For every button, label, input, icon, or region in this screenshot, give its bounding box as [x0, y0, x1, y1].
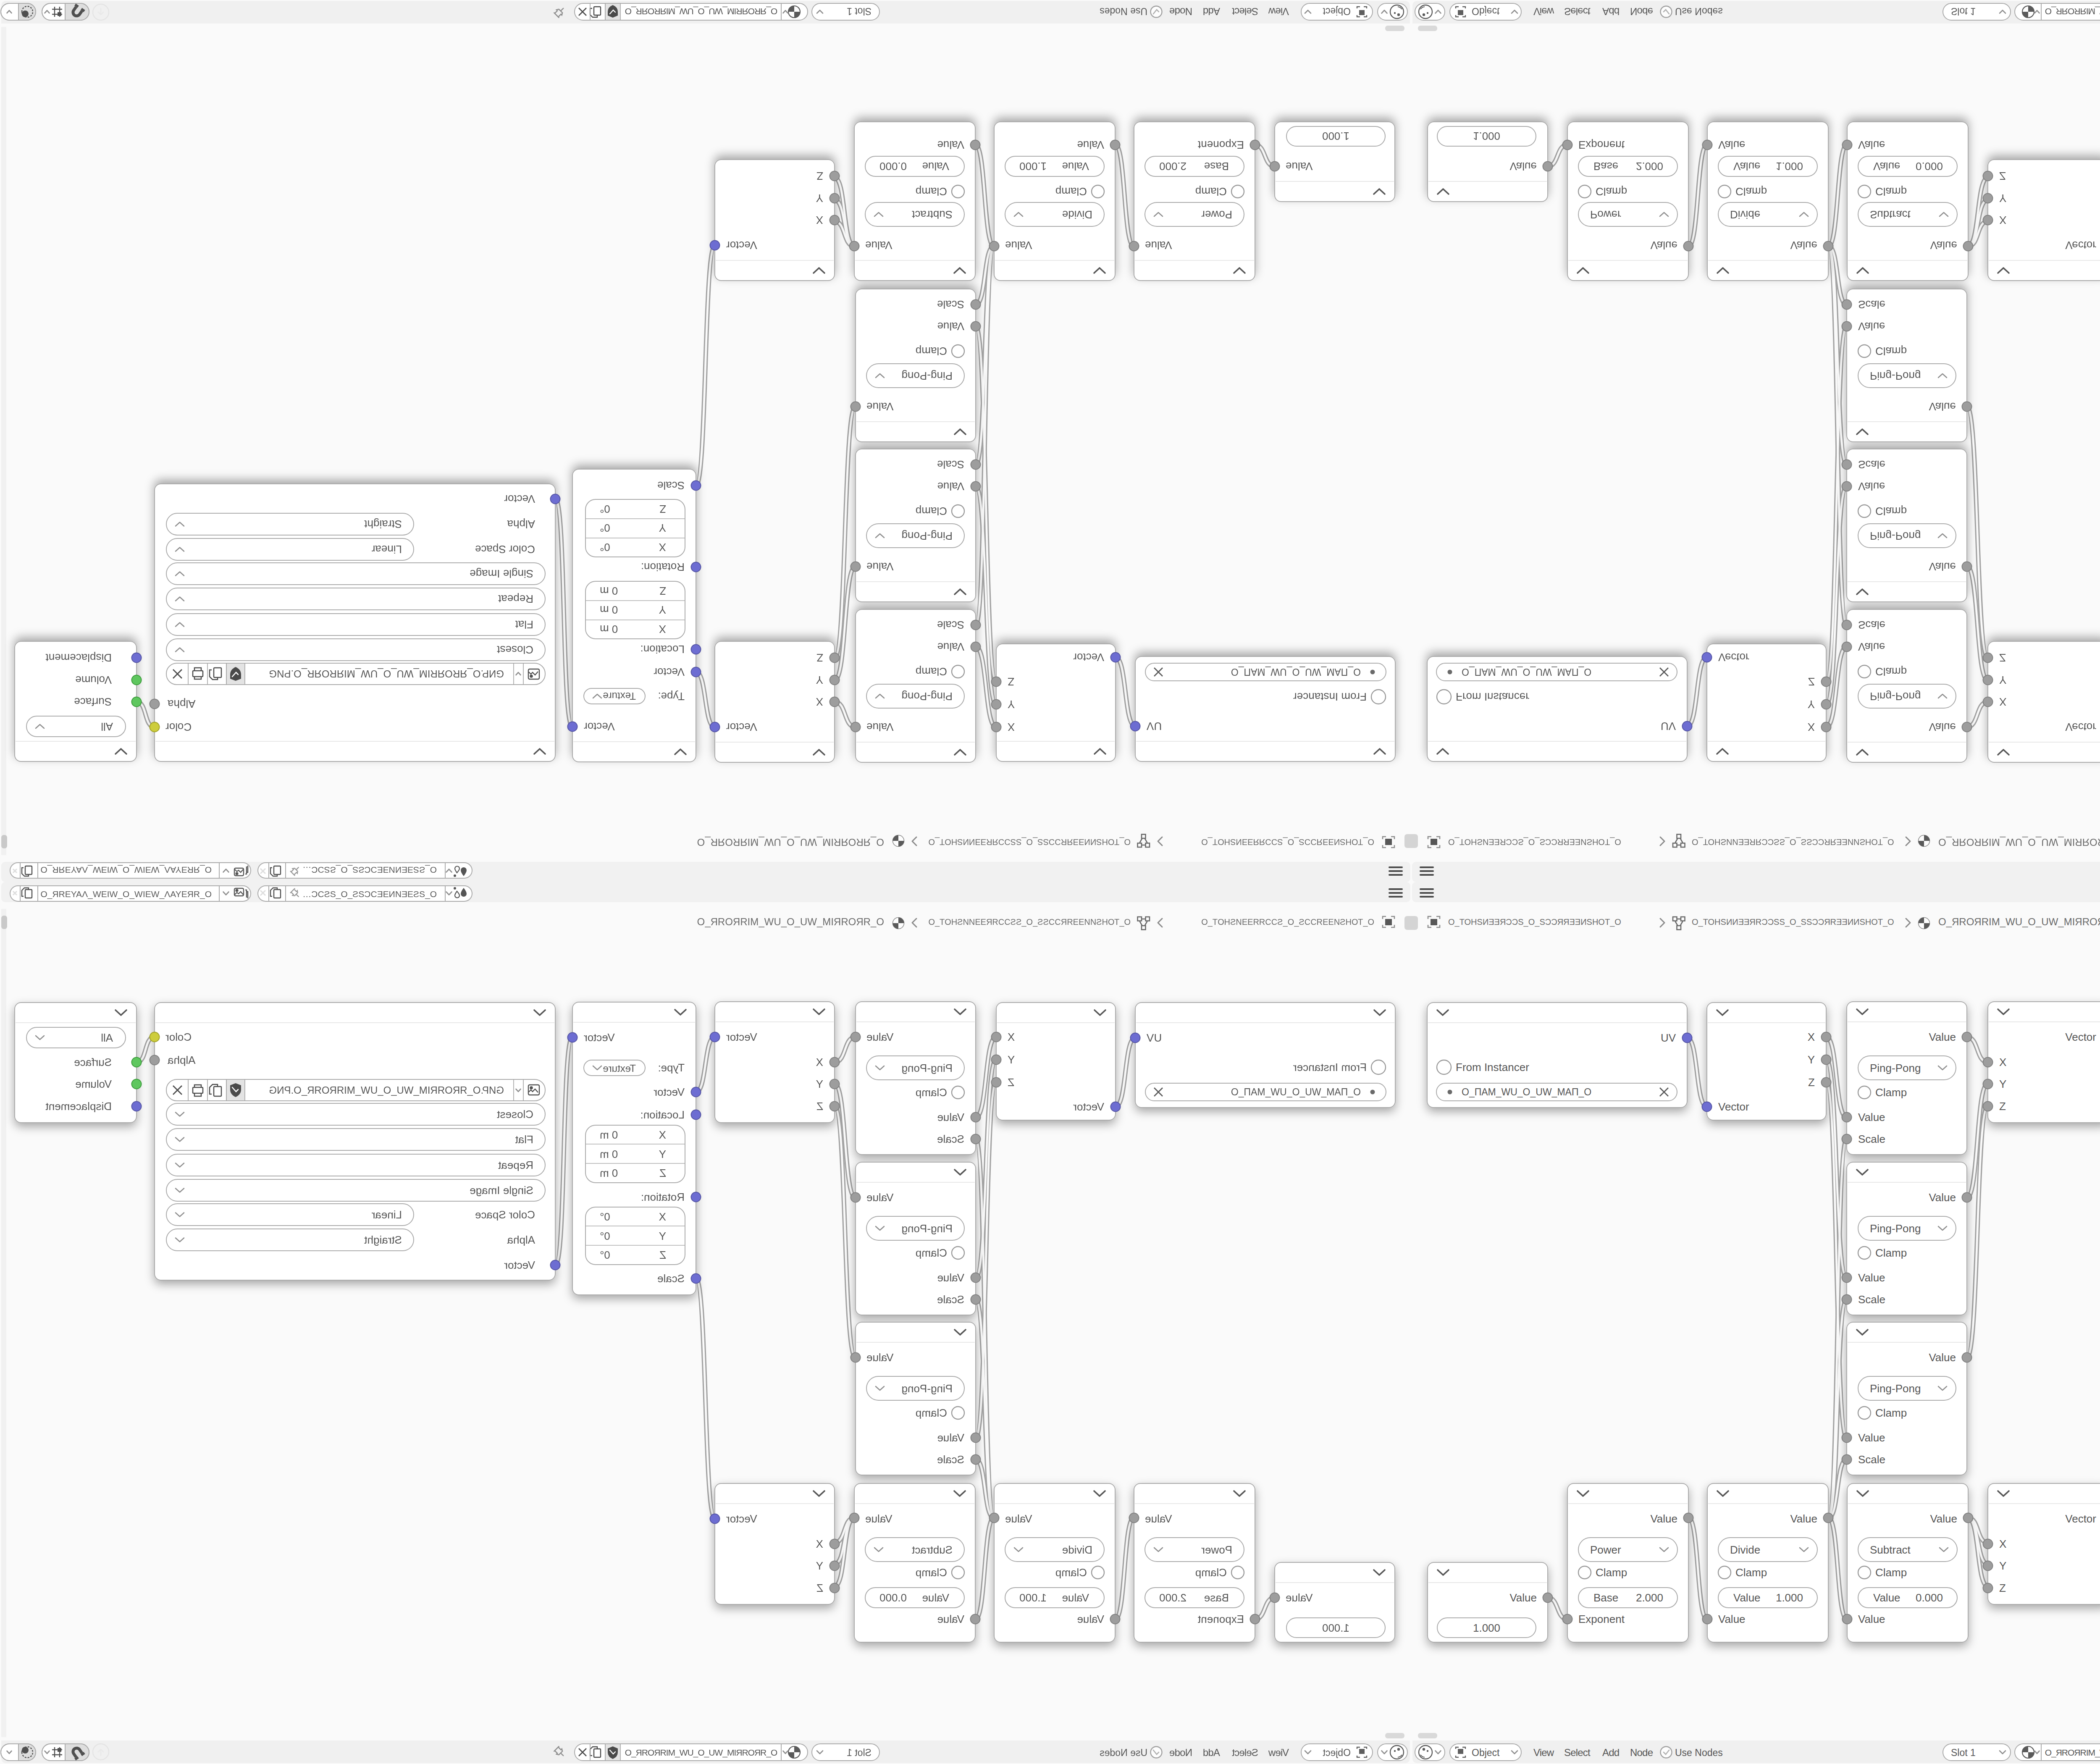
svg-text:Z: Z	[1808, 1076, 1815, 1089]
svg-text:Clamp: Clamp	[1735, 1566, 1767, 1579]
svg-text:Base: Base	[1204, 160, 1229, 173]
svg-text:Z: Z	[1999, 1100, 2006, 1113]
svg-text:Add: Add	[1602, 6, 1619, 17]
svg-text:Clamp: Clamp	[1875, 185, 1907, 198]
svg-text:Z: Z	[659, 1249, 666, 1261]
svg-text:Clamp: Clamp	[1596, 185, 1627, 198]
svg-text:Value: Value	[1077, 139, 1104, 151]
svg-text:1.000: 1.000	[1019, 160, 1047, 173]
svg-text:Power: Power	[1201, 208, 1232, 221]
svg-text:Y: Y	[1999, 192, 2006, 205]
svg-text:Clamp: Clamp	[1875, 345, 1907, 357]
svg-text:From Instancer: From Instancer	[1293, 690, 1367, 703]
svg-text:Subtract: Subtract	[1870, 208, 1911, 221]
svg-text:O_TOHSИИƎƎЯRƆƆSS_O_SSƆƆЯRƎƎИИS: O_TOHSИИƎƎЯRƆƆSS_O_SSƆƆЯRƎƎИИSHOT_O	[928, 837, 1131, 847]
svg-text:Vector: Vector	[1073, 651, 1104, 664]
svg-text:Value: Value	[865, 239, 892, 252]
svg-text:Divide: Divide	[1730, 208, 1760, 221]
svg-text:Value: Value	[1509, 160, 1537, 173]
svg-text:X: X	[1808, 721, 1815, 733]
svg-text:Value: Value	[1858, 1431, 1885, 1444]
svg-text:Z: Z	[816, 651, 823, 664]
svg-text:Y: Y	[816, 192, 823, 205]
svg-text:Value: Value	[937, 1431, 964, 1444]
svg-text:Y: Y	[816, 1559, 823, 1572]
svg-text:Value: Value	[1145, 1512, 1172, 1525]
svg-text:Color Space: Color Space	[475, 543, 535, 556]
svg-text:Value: Value	[1733, 160, 1761, 173]
svg-text:Location:: Location:	[640, 643, 685, 656]
svg-text:0.000: 0.000	[879, 1591, 907, 1604]
svg-text:Exponent: Exponent	[1578, 139, 1625, 151]
svg-text:Divide: Divide	[1062, 1543, 1092, 1556]
svg-text:Surface: Surface	[74, 696, 112, 708]
svg-text:1.000: 1.000	[1322, 130, 1349, 142]
svg-text:Subtract: Subtract	[911, 208, 953, 221]
svg-text:Clamp: Clamp	[1055, 185, 1087, 198]
svg-text:Value: Value	[1790, 1512, 1817, 1525]
svg-text:Displacement: Displacement	[45, 1100, 112, 1113]
svg-text:Clamp: Clamp	[1875, 1566, 1907, 1579]
svg-text:X: X	[816, 696, 823, 708]
svg-text:X: X	[1999, 1056, 2006, 1068]
svg-text:Rotation:: Rotation:	[641, 561, 685, 573]
svg-text:Clamp: Clamp	[1596, 1566, 1627, 1579]
svg-text:Power: Power	[1201, 1543, 1232, 1556]
svg-text:1.000: 1.000	[1019, 1591, 1047, 1604]
svg-text:Straight: Straight	[364, 518, 402, 530]
svg-text:Value: Value	[1858, 480, 1885, 493]
svg-text:GИP.O_ЯROЯRIM_WU_O_UW_MIЯROЯR_: GИP.O_ЯROЯRIM_WU_O_UW_MIЯROЯR_O.PNG	[269, 668, 504, 680]
svg-text:Value: Value	[1929, 400, 1956, 413]
svg-text:Rotation:: Rotation:	[641, 1191, 685, 1203]
svg-text:UV: UV	[1146, 1032, 1162, 1044]
svg-text:Vector: Vector	[504, 1259, 535, 1271]
svg-text:Scale: Scale	[657, 1272, 685, 1285]
svg-text:Displacement: Displacement	[45, 651, 112, 664]
svg-text:Ping-Pong: Ping-Pong	[1870, 1062, 1921, 1074]
svg-text:Value: Value	[1929, 721, 1956, 733]
svg-text:X: X	[659, 541, 666, 554]
svg-text:2.000: 2.000	[1159, 160, 1186, 173]
svg-text:Value: Value	[1858, 320, 1885, 333]
svg-text:Vector: Vector	[1073, 1100, 1104, 1113]
svg-text:Vector: Vector	[2065, 721, 2096, 733]
svg-text:0 m: 0 m	[600, 623, 618, 635]
svg-text:0.000: 0.000	[879, 160, 907, 173]
svg-text:Use Nodes: Use Nodes	[1100, 1747, 1147, 1758]
svg-text:Linear: Linear	[371, 543, 402, 556]
svg-text:Y: Y	[1808, 1053, 1815, 1066]
svg-text:Select: Select	[1232, 1747, 1258, 1758]
svg-text:Scale: Scale	[1858, 458, 1885, 471]
svg-text:Value: Value	[937, 320, 964, 333]
svg-text:Color Space: Color Space	[475, 1208, 535, 1221]
svg-text:Ping-Pong: Ping-Pong	[902, 1222, 953, 1235]
svg-text:Y: Y	[659, 604, 666, 616]
svg-text:X: X	[816, 1056, 823, 1068]
svg-text:X: X	[816, 1538, 823, 1550]
svg-text:Object: Object	[1472, 6, 1500, 17]
svg-text:Texture: Texture	[603, 1063, 636, 1074]
svg-text:Z: Z	[816, 1100, 823, 1113]
svg-text:0.000: 0.000	[1916, 1591, 1943, 1604]
svg-text:Vector: Vector	[2065, 1031, 2096, 1043]
svg-text:Ping-Pong: Ping-Pong	[1870, 530, 1921, 542]
svg-text:Y: Y	[1808, 698, 1815, 711]
svg-text:Object: Object	[1323, 1747, 1351, 1758]
svg-text:Value: Value	[1005, 1512, 1032, 1525]
svg-text:Node: Node	[1630, 1747, 1653, 1758]
svg-text:X: X	[659, 1210, 666, 1223]
svg-text:Texture: Texture	[603, 690, 636, 702]
svg-text:Value: Value	[1062, 1591, 1089, 1604]
svg-text:O_ЯROЯRIM_WU_O_UW_MIЯROЯR_O: O_ЯROЯRIM_WU_O_UW_MIЯROЯR_O	[697, 916, 884, 927]
svg-text:O_ЯROЯRIM_WU_O_UW_MIЯROЯR_O: O_ЯROЯRIM_WU_O_UW_MIЯROЯR_O	[697, 837, 884, 848]
svg-text:Subtract: Subtract	[911, 1543, 953, 1556]
svg-text:Y: Y	[1999, 674, 2006, 686]
svg-text:Clamp: Clamp	[916, 505, 947, 517]
svg-text:Y: Y	[659, 1148, 666, 1160]
svg-text:Closest: Closest	[497, 1108, 533, 1121]
svg-text:Z: Z	[1008, 675, 1014, 688]
svg-text:Clamp: Clamp	[1195, 1566, 1227, 1579]
svg-text:Vector: Vector	[726, 1512, 757, 1525]
svg-text:Z: Z	[1999, 1582, 2006, 1594]
svg-text:O_TOHSИƎƎЯƆƆS_O_SƆƆЯЯƎƎИSHOT_O: O_TOHSИƎƎЯƆƆS_O_SƆƆЯЯƎƎИSHOT_O	[1448, 837, 1621, 847]
svg-text:0 m: 0 m	[600, 604, 618, 616]
svg-text:Slot 1: Slot 1	[1951, 1747, 1976, 1758]
svg-text:O_TOHSИИƎƎЯRƆƆSS_O_SSƆƆЯRƎƎИИS: O_TOHSИИƎƎЯRƆƆSS_O_SSƆƆЯRƎƎИИSHOT_O	[1692, 837, 1894, 847]
svg-text:0.000: 0.000	[1916, 160, 1943, 173]
svg-text:Ping-Pong: Ping-Pong	[1870, 1222, 1921, 1235]
svg-text:Type:: Type:	[658, 1061, 685, 1074]
svg-text:Value: Value	[1858, 1613, 1885, 1625]
svg-text:Add: Add	[1602, 1747, 1619, 1758]
svg-text:0 m: 0 m	[600, 585, 618, 597]
svg-text:Ping-Pong: Ping-Pong	[1870, 1382, 1921, 1395]
svg-text:Value: Value	[1650, 239, 1677, 252]
svg-text:Y: Y	[1999, 1559, 2006, 1572]
svg-text:O_ПAM_WU_O_UW_MAП_O: O_ПAM_WU_O_UW_MAП_O	[1231, 1087, 1361, 1097]
svg-text:Ping-Pong: Ping-Pong	[902, 530, 953, 542]
svg-text:O_ЯROЯRIM_WU_O_UW_MIЯROЯR_O: O_ЯROЯRIM_WU_O_UW_MIЯROЯR_O	[625, 1748, 777, 1758]
svg-text:Value: Value	[866, 1031, 894, 1043]
svg-text:Closest: Closest	[497, 643, 533, 656]
svg-text:Clamp: Clamp	[1875, 1247, 1907, 1259]
svg-text:Value: Value	[937, 1111, 964, 1123]
svg-text:Clamp: Clamp	[916, 185, 947, 198]
svg-text:Clamp: Clamp	[916, 1086, 947, 1099]
svg-text:Clamp: Clamp	[916, 345, 947, 357]
svg-text:Color: Color	[165, 1031, 192, 1043]
svg-text:Vector: Vector	[1718, 1100, 1749, 1113]
svg-text:All: All	[101, 1032, 113, 1044]
svg-text:Exponent: Exponent	[1197, 139, 1244, 151]
svg-text:Repeat: Repeat	[498, 1159, 533, 1171]
svg-text:Vector: Vector	[504, 493, 535, 505]
svg-text:Exponent: Exponent	[1578, 1613, 1625, 1625]
svg-text:Slot 1: Slot 1	[1951, 6, 1976, 17]
svg-text:Value: Value	[1733, 1591, 1761, 1604]
svg-text:Straight: Straight	[364, 1234, 402, 1246]
svg-text:Base: Base	[1204, 1591, 1229, 1604]
svg-text:Vector: Vector	[726, 1031, 757, 1043]
svg-text:Z: Z	[816, 1582, 823, 1594]
svg-text:Y: Y	[1008, 698, 1015, 711]
svg-text:Value: Value	[1718, 139, 1746, 151]
svg-text:Clamp: Clamp	[916, 1566, 947, 1579]
svg-text:Scale: Scale	[657, 479, 685, 492]
svg-text:Vector: Vector	[2065, 239, 2096, 252]
svg-text:Value: Value	[1930, 1512, 1957, 1525]
svg-text:1.000: 1.000	[1473, 1622, 1500, 1634]
svg-text:Value: Value	[1509, 1591, 1537, 1604]
svg-text:Value: Value	[1873, 160, 1900, 173]
svg-text:Ping-Pong: Ping-Pong	[902, 690, 953, 703]
svg-text:Scale: Scale	[937, 619, 964, 631]
svg-text:Value: Value	[1718, 1613, 1746, 1625]
svg-text:O_ЯROЯRIM_WU_O_UW_MIЯROЯR_O: O_ЯROЯRIM_WU_O_UW_MIЯROЯR_O	[2045, 6, 2100, 16]
svg-text:Scale: Scale	[937, 1293, 964, 1306]
svg-text:Linear: Linear	[371, 1208, 402, 1221]
svg-text:Alpha: Alpha	[167, 698, 195, 710]
svg-text:Value: Value	[937, 640, 964, 653]
svg-text:Single Image: Single Image	[470, 567, 533, 580]
svg-text:Use Nodes: Use Nodes	[1675, 6, 1723, 17]
svg-text:O_ƧSƎEИNƎEƆCƧS_O_ƧSƆC…: O_ƧSƎEИNƎEƆCƧS_O_ƧSƆC…	[302, 889, 437, 899]
svg-text:0°: 0°	[600, 1210, 610, 1223]
svg-text:Vector: Vector	[584, 720, 615, 733]
svg-text:2.000: 2.000	[1159, 1591, 1186, 1604]
svg-text:Vector: Vector	[654, 1086, 685, 1098]
svg-text:O_ЯROЯRIM_WU_O_UW_MIЯROЯR_O: O_ЯROЯRIM_WU_O_UW_MIЯROЯR_O	[1938, 916, 2100, 927]
svg-text:Color: Color	[165, 721, 192, 733]
svg-text:0°: 0°	[600, 541, 610, 554]
svg-text:Scale: Scale	[937, 298, 964, 311]
svg-text:Value: Value	[865, 1512, 892, 1525]
svg-text:X: X	[1999, 1538, 2006, 1550]
svg-text:Value: Value	[1790, 239, 1817, 252]
svg-text:Power: Power	[1590, 1543, 1621, 1556]
svg-text:Clamp: Clamp	[1735, 185, 1767, 198]
svg-text:Clamp: Clamp	[916, 1247, 947, 1259]
svg-text:Ping-Pong: Ping-Pong	[1870, 370, 1921, 382]
svg-text:Y: Y	[816, 1078, 823, 1090]
svg-text:X: X	[1999, 214, 2006, 226]
svg-text:1.000: 1.000	[1473, 130, 1500, 142]
svg-text:Value: Value	[1929, 1031, 1956, 1043]
svg-text:Y: Y	[816, 674, 823, 686]
svg-text:All: All	[101, 720, 113, 733]
svg-text:Value: Value	[1930, 239, 1957, 252]
svg-text:0°: 0°	[600, 1249, 610, 1261]
svg-text:Value: Value	[1858, 640, 1885, 653]
svg-text:X: X	[659, 1129, 666, 1141]
svg-text:O_ЯROЯRIM_WU_O_UW_MIЯROЯR_O: O_ЯROЯRIM_WU_O_UW_MIЯROЯR_O	[1938, 837, 2100, 848]
svg-text:Y: Y	[1008, 1053, 1015, 1066]
svg-text:Value: Value	[937, 480, 964, 493]
svg-text:Value: Value	[1929, 1191, 1956, 1204]
svg-text:O_ƧSƎEИNƎEƆCƧS_O_ƧSƆC…: O_ƧSƎEИNƎEƆCƧS_O_ƧSƆC…	[302, 865, 437, 875]
svg-text:Vector: Vector	[726, 239, 757, 252]
svg-text:Vector: Vector	[2065, 1512, 2096, 1525]
svg-text:Clamp: Clamp	[1875, 665, 1907, 678]
svg-text:Value: Value	[937, 139, 964, 151]
svg-text:Clamp: Clamp	[916, 1407, 947, 1419]
svg-text:Value: Value	[922, 160, 949, 173]
svg-text:Select: Select	[1232, 6, 1258, 17]
svg-text:X: X	[1808, 1031, 1815, 1043]
svg-text:Value: Value	[1858, 1271, 1885, 1284]
svg-text:0 m: 0 m	[600, 1148, 618, 1160]
svg-text:O_ЯROЯRIM_WU_O_UW_MIЯROЯR_O: O_ЯROЯRIM_WU_O_UW_MIЯROЯR_O	[625, 6, 777, 16]
svg-text:O_ЯRƎYAΛ_WƎIW_O_WIƎW_ΛAYƎЯR_O: O_ЯRƎYAΛ_WƎIW_O_WIƎW_ΛAYƎЯR_O	[40, 889, 212, 899]
svg-text:O_TOHSИƎƎЯƆƆS_O_SƆƆЯЯƎƎИSHOT_O: O_TOHSИƎƎЯƆƆS_O_SƆƆЯЯƎƎИSHOT_O	[1201, 917, 1374, 927]
svg-text:O_ЯRƎYAΛ_WƎIW_O_WIƎW_ΛAYƎЯR_O: O_ЯRƎYAΛ_WƎIW_O_WIƎW_ΛAYƎЯR_O	[40, 865, 212, 875]
svg-text:UV: UV	[1661, 1032, 1676, 1044]
svg-text:0°: 0°	[600, 1230, 610, 1242]
svg-text:X: X	[659, 623, 666, 635]
svg-text:Value: Value	[937, 1271, 964, 1284]
svg-text:Value: Value	[1286, 160, 1313, 173]
svg-text:Value: Value	[1077, 1613, 1104, 1625]
svg-text:Object: Object	[1472, 1747, 1500, 1758]
svg-text:UV: UV	[1146, 720, 1162, 732]
svg-text:Slot 1: Slot 1	[847, 1747, 871, 1758]
svg-text:O_ПAM_WU_O_UW_MAП_O: O_ПAM_WU_O_UW_MAП_O	[1462, 667, 1591, 677]
svg-text:Node: Node	[1169, 1747, 1192, 1758]
svg-text:Value: Value	[1873, 1591, 1900, 1604]
svg-text:Scale: Scale	[1858, 1293, 1885, 1306]
svg-text:Power: Power	[1590, 208, 1621, 221]
svg-text:Select: Select	[1564, 1747, 1591, 1758]
svg-text:Scale: Scale	[937, 1133, 964, 1145]
svg-text:Location:: Location:	[640, 1108, 685, 1121]
svg-text:Object: Object	[1323, 6, 1351, 17]
svg-text:Clamp: Clamp	[1055, 1566, 1087, 1579]
svg-text:Single Image: Single Image	[470, 1184, 533, 1197]
svg-text:Select: Select	[1564, 6, 1591, 17]
svg-text:Scale: Scale	[1858, 1133, 1885, 1145]
svg-text:Z: Z	[1999, 651, 2006, 664]
svg-text:1.000: 1.000	[1322, 1622, 1349, 1634]
svg-text:Alpha: Alpha	[507, 518, 535, 530]
svg-text:Flat: Flat	[515, 1133, 533, 1146]
svg-text:Slot 1: Slot 1	[847, 6, 871, 17]
svg-text:0°: 0°	[600, 503, 610, 515]
svg-text:Vector: Vector	[726, 721, 757, 733]
svg-text:View: View	[1268, 6, 1289, 17]
svg-text:Clamp: Clamp	[1875, 1086, 1907, 1099]
svg-text:From Instancer: From Instancer	[1456, 1061, 1529, 1074]
svg-text:Value: Value	[866, 1191, 894, 1204]
svg-text:Scale: Scale	[937, 458, 964, 471]
svg-text:0 m: 0 m	[600, 1129, 618, 1141]
svg-text:O_TOHSИƎƎЯƆƆS_O_SƆƆЯЯƎƎИSHOT_O: O_TOHSИƎƎЯƆƆS_O_SƆƆЯЯƎƎИSHOT_O	[1448, 917, 1621, 927]
svg-text:UV: UV	[1661, 720, 1676, 732]
svg-text:O_ПAM_WU_O_UW_MAП_O: O_ПAM_WU_O_UW_MAП_O	[1231, 667, 1361, 677]
svg-text:Z: Z	[659, 503, 666, 515]
svg-text:Clamp: Clamp	[1195, 185, 1227, 198]
svg-text:Use Nodes: Use Nodes	[1675, 1747, 1723, 1758]
svg-text:Surface: Surface	[74, 1056, 112, 1068]
svg-text:From Instancer: From Instancer	[1293, 1061, 1367, 1074]
svg-text:1.000: 1.000	[1776, 1591, 1803, 1604]
svg-text:Y: Y	[659, 1230, 666, 1242]
svg-text:Clamp: Clamp	[1875, 1407, 1907, 1419]
svg-text:Base: Base	[1593, 160, 1618, 173]
svg-text:Value: Value	[1286, 1591, 1313, 1604]
svg-text:Add: Add	[1203, 1747, 1220, 1758]
svg-text:2.000: 2.000	[1636, 160, 1663, 173]
svg-text:Ping-Pong: Ping-Pong	[902, 370, 953, 382]
svg-text:Value: Value	[866, 721, 894, 733]
svg-text:View: View	[1533, 6, 1554, 17]
svg-text:Scale: Scale	[1858, 1453, 1885, 1466]
svg-text:Value: Value	[937, 1613, 964, 1625]
svg-text:Flat: Flat	[515, 618, 533, 631]
svg-text:O_TOHSИƎƎЯƆƆS_O_SƆƆЯЯƎƎИSHOT_O: O_TOHSИƎƎЯƆƆS_O_SƆƆЯЯƎƎИSHOT_O	[1201, 837, 1374, 847]
svg-text:Value: Value	[866, 1351, 894, 1364]
svg-text:Scale: Scale	[1858, 619, 1885, 631]
svg-text:From Instancer: From Instancer	[1456, 690, 1529, 703]
svg-text:O_ПAM_WU_O_UW_MAП_O: O_ПAM_WU_O_UW_MAП_O	[1462, 1087, 1591, 1097]
svg-text:Use Nodes: Use Nodes	[1100, 6, 1147, 17]
svg-text:Vector: Vector	[654, 666, 685, 678]
svg-text:Volume: Volume	[75, 674, 112, 686]
svg-text:Alpha: Alpha	[507, 1234, 535, 1246]
svg-text:Node: Node	[1169, 6, 1192, 17]
svg-text:O_TOHSИИƎƎЯRƆƆSS_O_SSƆƆЯRƎƎИИS: O_TOHSИИƎƎЯRƆƆSS_O_SSƆƆЯRƎƎИИSHOT_O	[928, 917, 1131, 927]
svg-text:Value: Value	[1005, 239, 1032, 252]
svg-text:Volume: Volume	[75, 1078, 112, 1090]
svg-text:X: X	[816, 214, 823, 226]
svg-text:Z: Z	[1808, 675, 1815, 688]
svg-text:Z: Z	[659, 585, 666, 597]
svg-text:Vector: Vector	[584, 1031, 615, 1044]
svg-text:Value: Value	[866, 560, 894, 573]
svg-text:View: View	[1268, 1747, 1289, 1758]
svg-text:Y: Y	[1999, 1078, 2006, 1090]
svg-text:X: X	[1008, 1031, 1015, 1043]
svg-text:GИP.O_ЯROЯRIM_WU_O_UW_MIЯROЯR_: GИP.O_ЯROЯRIM_WU_O_UW_MIЯROЯR_O.PNG	[269, 1084, 504, 1096]
svg-text:Exponent: Exponent	[1197, 1613, 1244, 1625]
svg-text:Base: Base	[1593, 1591, 1618, 1604]
svg-text:Value: Value	[1929, 560, 1956, 573]
svg-text:Divide: Divide	[1062, 208, 1092, 221]
svg-text:Divide: Divide	[1730, 1543, 1760, 1556]
svg-text:Scale: Scale	[1858, 298, 1885, 311]
svg-text:Value: Value	[1929, 1351, 1956, 1364]
svg-text:Repeat: Repeat	[498, 593, 533, 605]
svg-text:1.000: 1.000	[1776, 160, 1803, 173]
svg-text:O_TOHSИИƎƎЯRƆƆSS_O_SSƆƆЯRƎƎИИS: O_TOHSИИƎƎЯRƆƆSS_O_SSƆƆЯRƎƎИИSHOT_O	[1692, 917, 1894, 927]
svg-text:Z: Z	[659, 1167, 666, 1179]
svg-text:Value: Value	[922, 1591, 949, 1604]
svg-text:O_ЯROЯRIM_WU_O_UW_MIЯROЯR_O: O_ЯROЯRIM_WU_O_UW_MIЯROЯR_O	[2045, 1748, 2100, 1758]
svg-text:View: View	[1533, 1747, 1554, 1758]
svg-text:0°: 0°	[600, 522, 610, 534]
svg-text:Vector: Vector	[1718, 651, 1749, 664]
svg-text:Y: Y	[659, 522, 666, 534]
svg-text:0 m: 0 m	[600, 1167, 618, 1179]
svg-text:Scale: Scale	[937, 1453, 964, 1466]
svg-text:Value: Value	[1858, 1111, 1885, 1123]
svg-text:Clamp: Clamp	[916, 665, 947, 678]
svg-text:Ping-Pong: Ping-Pong	[902, 1382, 953, 1395]
svg-text:X: X	[1999, 696, 2006, 708]
